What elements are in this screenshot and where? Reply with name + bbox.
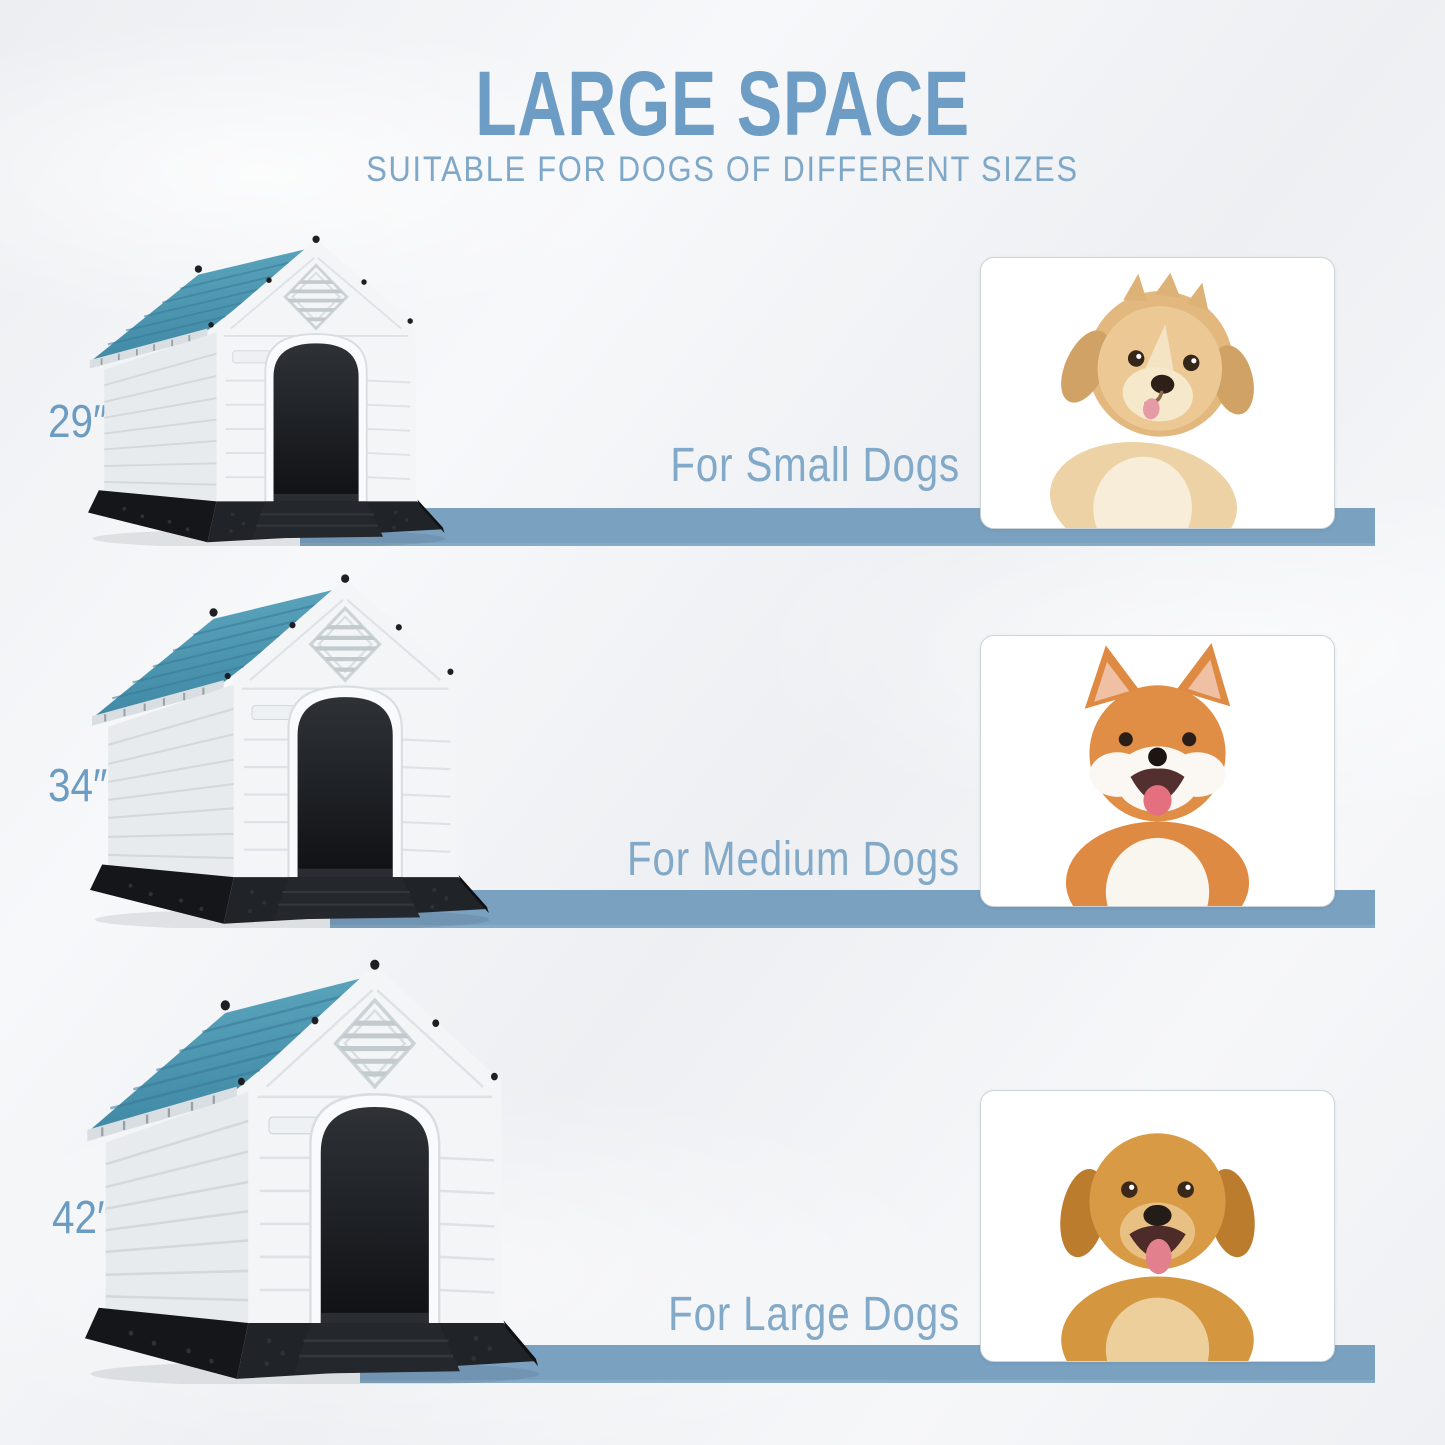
small-dog-photo	[981, 258, 1334, 528]
dog-house-illustration	[90, 568, 495, 928]
dog-house-illustration	[88, 230, 450, 546]
dog-photo-card	[980, 635, 1335, 907]
page-subtitle: SUITABLE FOR DOGS OF DIFFERENT SIZES	[87, 150, 1359, 190]
page-title: LARGE SPACE	[188, 52, 1257, 157]
dog-photo-card	[980, 257, 1335, 529]
dog-photo-card	[980, 1090, 1335, 1362]
large-dog-photo	[981, 1091, 1334, 1361]
dog-house-illustration	[85, 952, 545, 1384]
medium-dog-photo	[981, 636, 1334, 906]
